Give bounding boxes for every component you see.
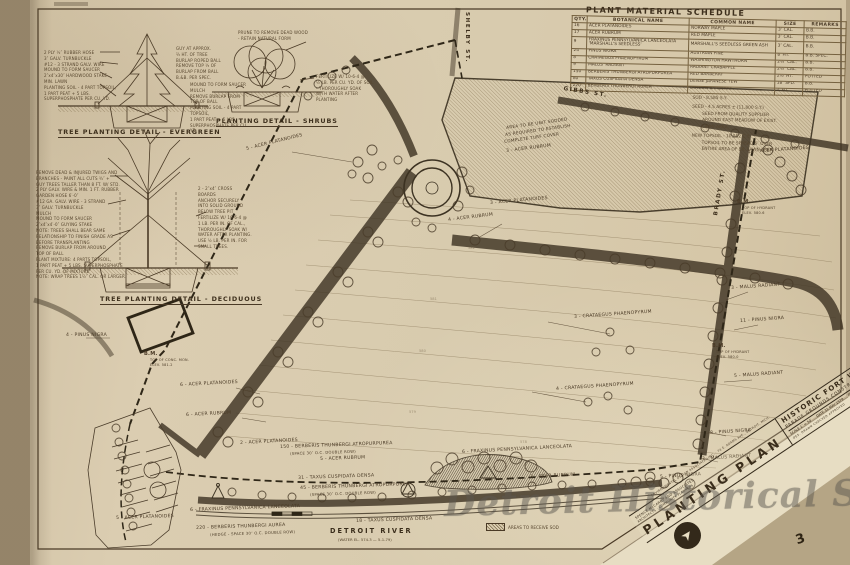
- callout-line: 1 PART PEAT + 5 LBS. SUPERPHOSPHATE: [36, 263, 128, 269]
- callout-line: PLANTING SOIL - 4 PART TOPSOIL,: [190, 105, 252, 117]
- plant-label: ELEV. 580.6: [742, 212, 765, 215]
- schedule-body: 16ACER PLATANOIDESNORWAY MAPLE3″ CAL.B.B…: [571, 23, 846, 97]
- plant-label: TOP OF HYDRANT: [716, 351, 749, 354]
- contour-label: 582: [468, 246, 475, 250]
- deciduous-callouts-right: 2 - 2″x4″ CROSSBOARDSANCHOR SECURELYINTO…: [198, 186, 258, 250]
- firm-logo-arrow-icon: ➤: [679, 527, 696, 543]
- archive-stamp: [54, 2, 88, 6]
- site-note-line: LAWN AREA.: [702, 125, 848, 134]
- scanned-drawing-sheet: 2 PLY ½″ RUBBER HOSE3″ GALV. TURNBUCKLE#…: [0, 0, 850, 565]
- river-label: DETROIT RIVER: [330, 527, 413, 535]
- callout-line: SMALL TREES.: [198, 244, 258, 250]
- street-label: SHELBY ST.: [464, 12, 470, 63]
- deciduous-callouts-left: REMOVE DEAD & INJURED TWIGS ANDBRANCHES …: [36, 170, 128, 280]
- sod-hatch-swatch: [486, 523, 505, 531]
- callout-line: PRUNE TO REMOVE DEAD WOOD: [238, 30, 310, 36]
- callout-line: MOUND TO FORM SAUCER: [190, 82, 252, 88]
- firm-logo: ➤: [674, 522, 701, 549]
- plant-label: TOP OF CONC. MON.: [150, 359, 189, 362]
- sod-legend-label: AREAS TO RECEIVE SOD: [508, 525, 559, 530]
- callout-line: SUPERPHOSPHATE PER CU. YD.: [44, 96, 122, 102]
- callout-line: - RETAIN NATURAL FORM: [238, 36, 310, 42]
- contour-label: 581: [430, 297, 437, 301]
- shrubs-callouts-right: FERTILIZE W/ 10-6-4 @½ LB. PER CU. YD. O…: [316, 74, 374, 103]
- callout-line: REMOVE DEAD & INJURED TWIGS AND: [36, 170, 128, 176]
- contour-label: 580: [419, 349, 426, 353]
- callout-line: PLANTING SOIL - 4 PART TOPSOIL,: [44, 85, 122, 91]
- plant-label: 4 - PINUS NIGRA: [66, 334, 107, 339]
- callout-line: ½ LB. PER CU. YD. OF SOIL: [316, 80, 374, 86]
- benchmark-label: B.M.: [712, 344, 726, 349]
- river-water-elevation-note: (WATER EL. 574.3 — 5-1-79): [338, 537, 392, 542]
- contour-label: 579: [409, 410, 416, 414]
- contour-label: 578: [520, 440, 527, 444]
- plant-label: ELEV. 581.2: [150, 364, 173, 367]
- callout-line: B.&B. PER SPEC.: [176, 75, 238, 81]
- detail-title-shrubs: PLANTING DETAIL - SHRUBS: [216, 117, 338, 127]
- evergreen-callouts-left: 2 PLY ½″ RUBBER HOSE3″ GALV. TURNBUCKLE#…: [44, 50, 122, 102]
- sod-legend: AREAS TO RECEIVE SOD: [486, 523, 559, 531]
- shrubs-callouts-top: PRUNE TO REMOVE DEAD WOOD- RETAIN NATURA…: [238, 30, 310, 42]
- benchmark-label: B.M.: [737, 200, 751, 205]
- site-note-line: SOD - 8,585 S.Y.: [692, 96, 848, 105]
- site-notes: SOD - 8,585 S.Y.SEED - 4.5 ACRES ± (11,8…: [692, 96, 849, 156]
- callout-line: NOTE: WRAP TREES 1½″ CAL. OR LARGER.: [36, 274, 128, 280]
- plant-material-schedule: PLANT MATERIAL SCHEDULE QTY.BOTANICAL NA…: [570, 5, 846, 97]
- benchmark-label: B.M.: [144, 352, 158, 357]
- evergreen-callouts-right: GUY AT APPROX.⅔ HT. OF TREEBURLAP ROPED …: [176, 46, 238, 81]
- callout-line: PLANTING: [316, 97, 374, 103]
- plant-label: ELEV. 580.0: [716, 356, 739, 359]
- detail-title-deciduous: TREE PLANTING DETAIL - DECIDUOUS: [100, 295, 262, 305]
- plant-label: TOP OF HYDRANT: [742, 207, 775, 210]
- schedule-table: QTY.BOTANICAL NAMECOMMON NAMESIZEREMARKS…: [570, 15, 847, 97]
